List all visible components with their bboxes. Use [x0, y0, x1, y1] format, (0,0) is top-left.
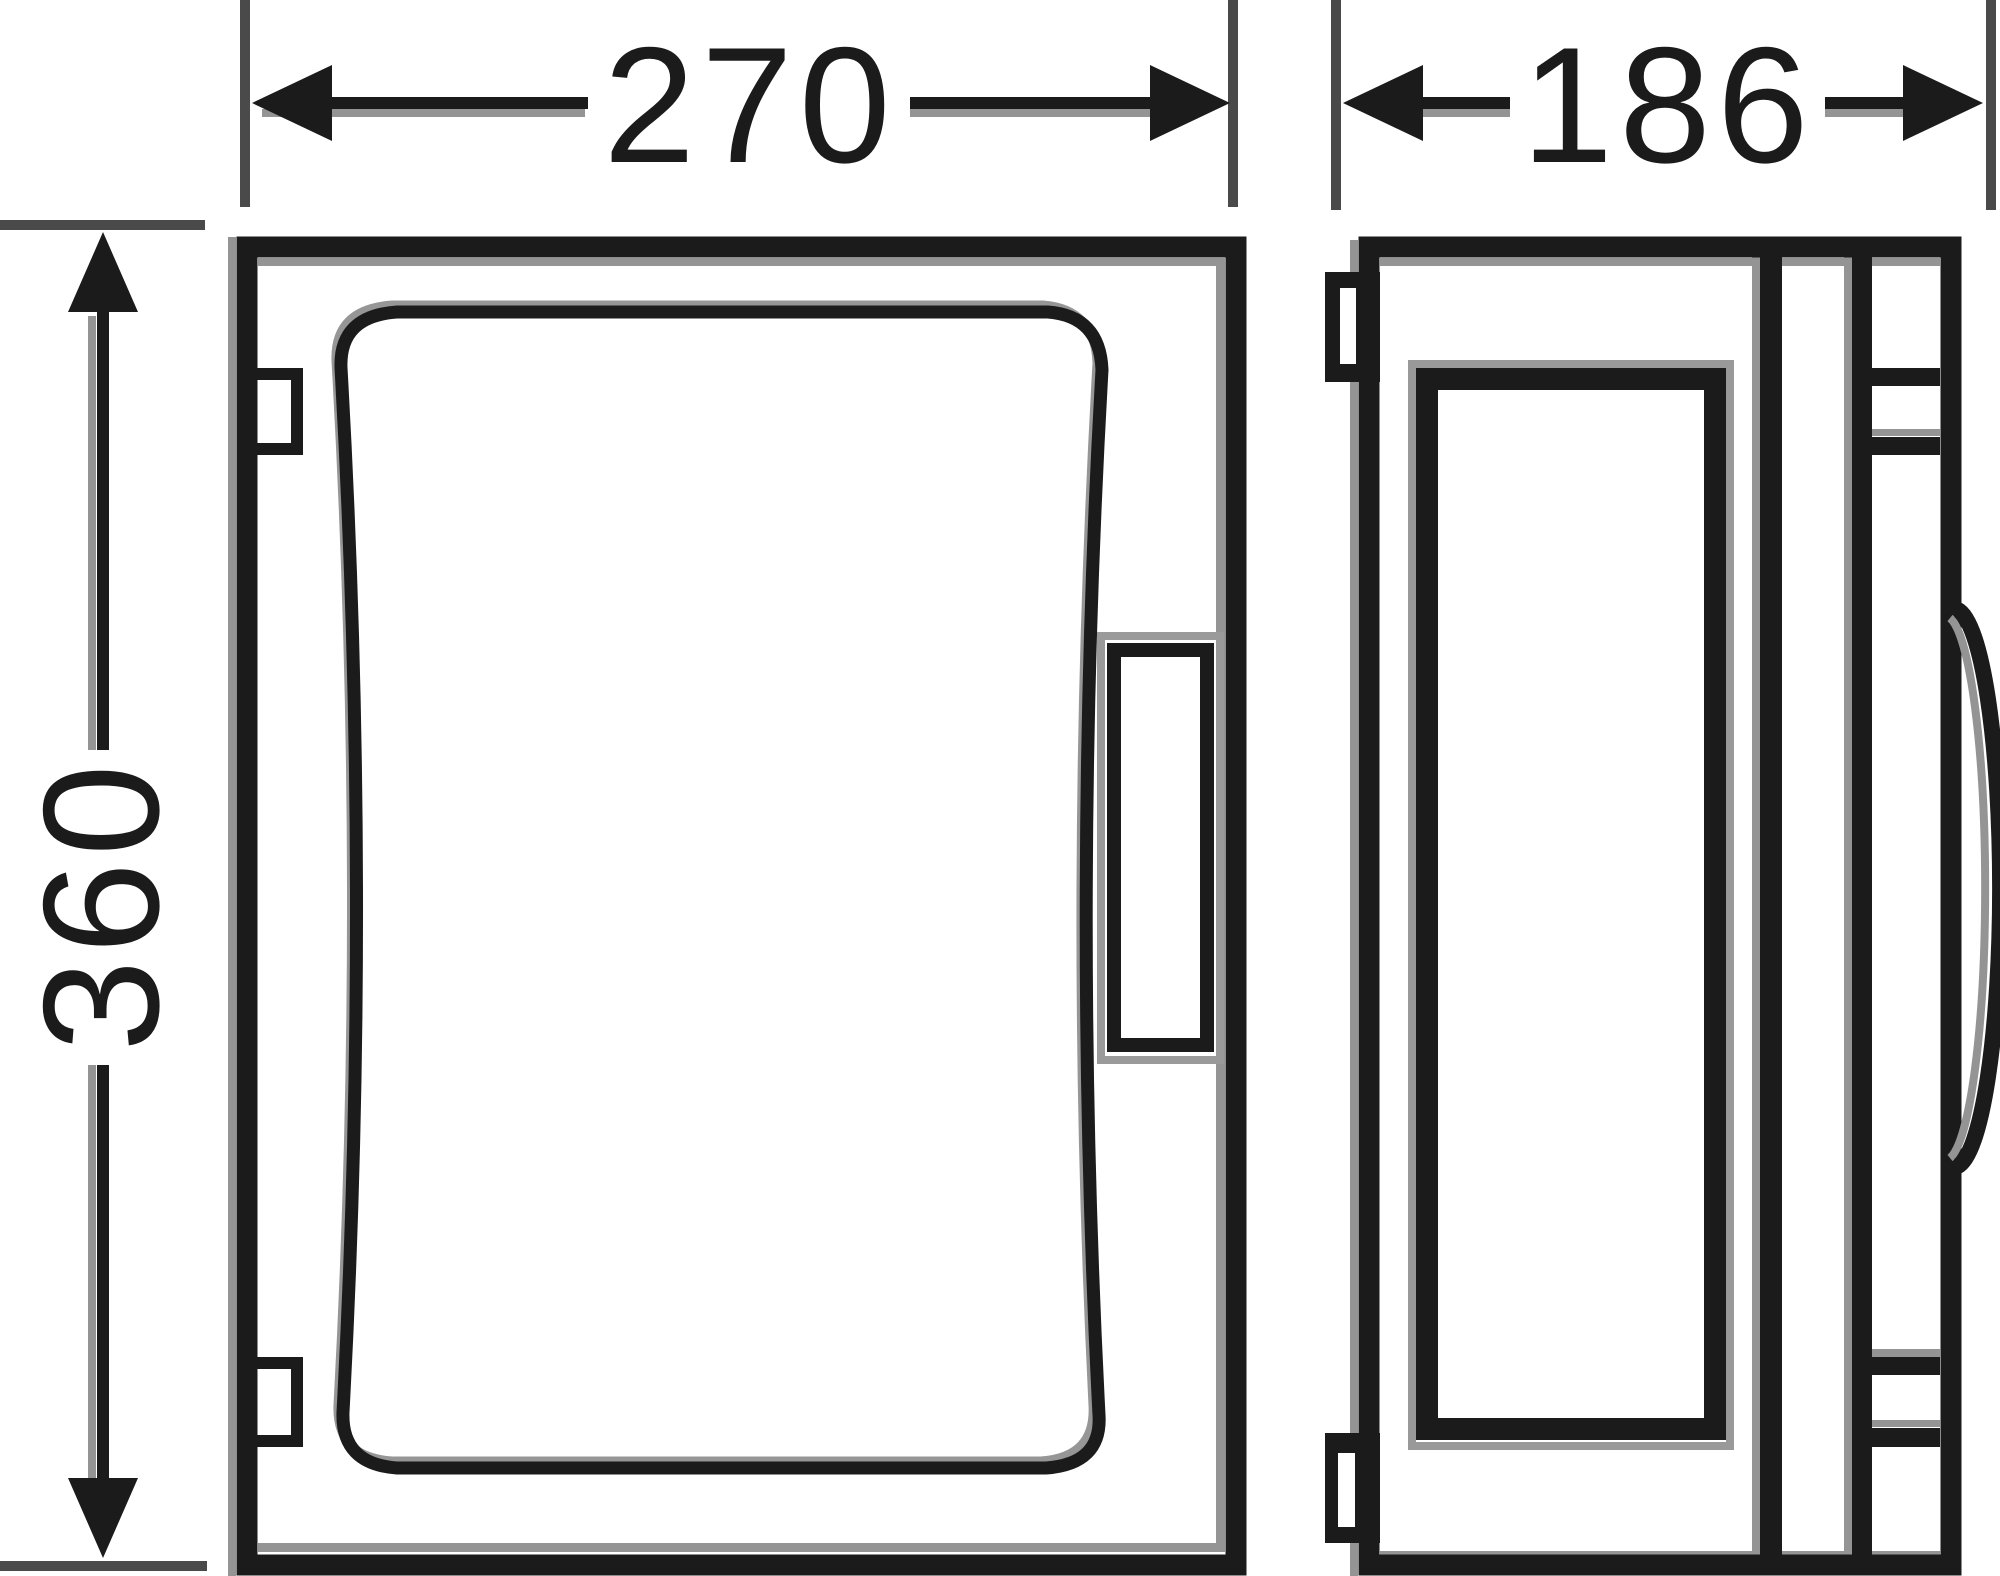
- dimension-270: 270: [240, 0, 1238, 207]
- drawing-svg: 270 186 360: [0, 0, 2000, 1576]
- arrow-up-icon: [68, 232, 138, 312]
- side-body-split-line: [1760, 240, 1782, 1570]
- arrow-left-icon: [1343, 65, 1423, 141]
- extension-line-bottom-360: [0, 1561, 207, 1571]
- side-door-panel: [1427, 379, 1715, 1429]
- ghost-line: [228, 237, 236, 1576]
- ghost-line: [1350, 240, 1358, 1576]
- ghost-line: [258, 1543, 1225, 1552]
- ghost-line: [258, 258, 1225, 266]
- front-view: [228, 237, 1236, 1576]
- dim-line-ghost: [910, 109, 1155, 117]
- wall-bracket-bulge: [1958, 610, 2000, 1166]
- dim-line-ghost: [1825, 109, 1910, 117]
- ghost-line: [1872, 1349, 1940, 1357]
- dim-line-ghost: [88, 1065, 96, 1480]
- dim-line-186-left: [1415, 97, 1510, 109]
- ghost-line: [1752, 247, 1760, 1562]
- mount-rail-bar: [1872, 437, 1940, 455]
- mount-rail-bar: [1872, 1428, 1940, 1447]
- dimension-label-360: 360: [9, 758, 193, 1051]
- side-back-split-line: [1852, 240, 1872, 1570]
- dim-line-186-right: [1825, 97, 1910, 109]
- dim-line-ghost: [88, 316, 96, 750]
- arrow-left-icon: [252, 65, 332, 141]
- door-outline: [341, 312, 1102, 1468]
- extension-line-left-270: [240, 0, 250, 207]
- dim-line-360-top: [97, 308, 109, 750]
- arrow-right-icon: [1903, 65, 1983, 141]
- ghost-line: [1872, 429, 1940, 436]
- hinge-tab-bottom-slot: [1338, 1453, 1355, 1527]
- side-panel-ghost: [1412, 364, 1730, 1446]
- extension-line-right-186: [1986, 0, 1996, 210]
- dim-line-ghost: [1420, 109, 1510, 117]
- dim-line-270-right: [910, 97, 1162, 109]
- door-handle: [1114, 650, 1207, 1045]
- dim-line-360-bottom: [97, 1065, 109, 1480]
- dimension-186: 186: [1331, 0, 1996, 210]
- dimension-360: 360: [0, 220, 207, 1571]
- extension-line-top-360: [0, 220, 205, 230]
- extension-line-left-186: [1331, 0, 1341, 210]
- ghost-line: [1872, 1420, 1940, 1427]
- dim-line-270-left: [300, 97, 588, 109]
- mount-rail-bar: [1872, 1357, 1940, 1375]
- dimension-label-186: 186: [1521, 13, 1814, 197]
- door-outline-ghost: [336, 305, 1097, 1461]
- hinge-tab-top-slot: [1340, 288, 1356, 364]
- arrow-down-icon: [68, 1478, 138, 1558]
- dimension-drawing: 270 186 360: [0, 0, 2000, 1576]
- side-view: [1325, 240, 2000, 1576]
- extension-line-right-270: [1228, 0, 1238, 207]
- ghost-line: [1844, 247, 1852, 1562]
- mount-rail-bar: [1872, 368, 1940, 386]
- dimension-label-270: 270: [603, 13, 896, 197]
- arrow-right-icon: [1150, 65, 1230, 141]
